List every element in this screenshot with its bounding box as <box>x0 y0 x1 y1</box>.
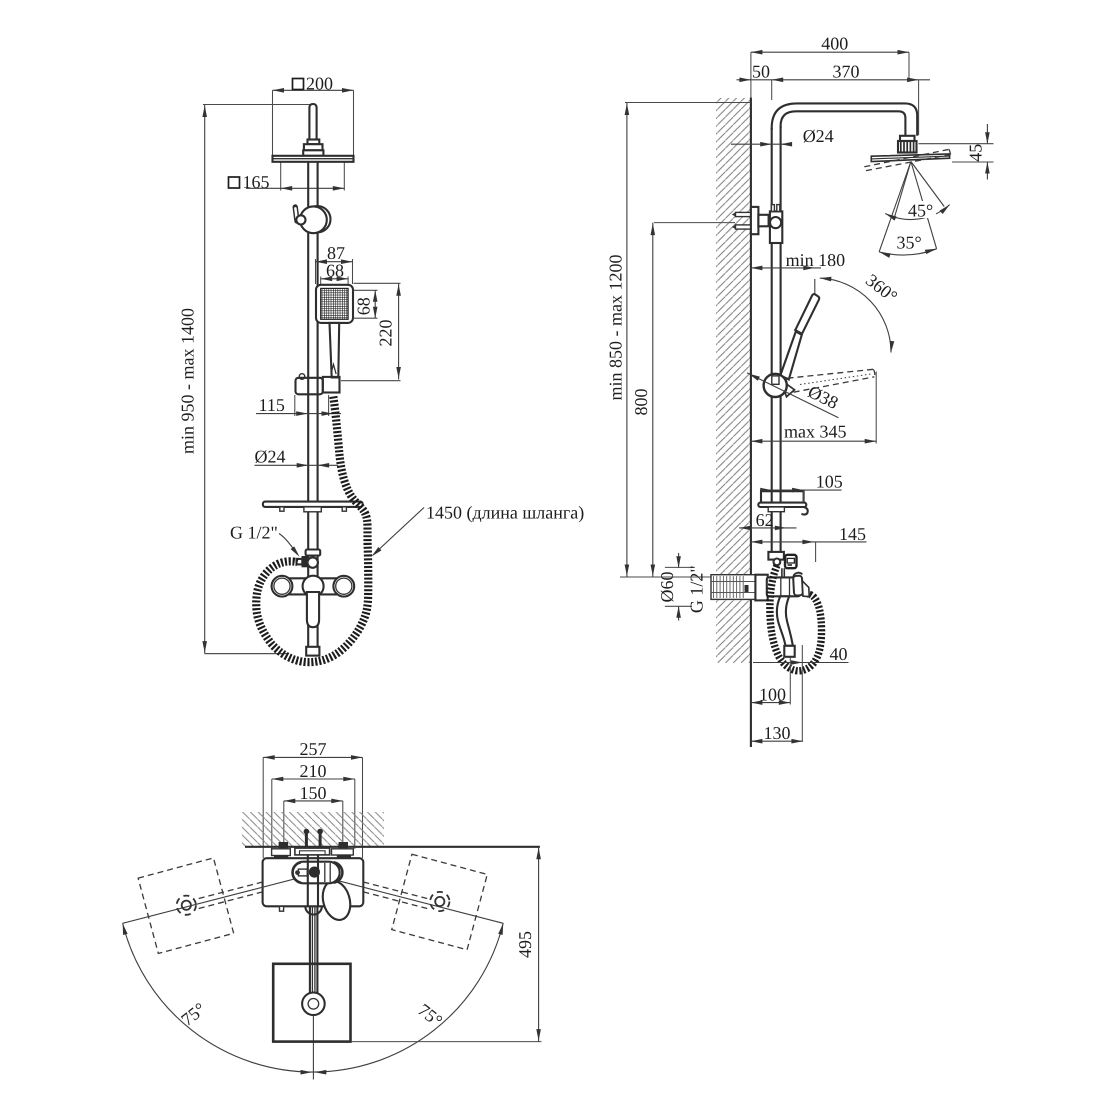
svg-text:min 950 - max 1400: min 950 - max 1400 <box>178 308 198 454</box>
svg-text:370: 370 <box>833 62 860 82</box>
svg-text:35°: 35° <box>897 233 922 253</box>
svg-text:Ø24: Ø24 <box>255 447 286 467</box>
svg-text:150: 150 <box>300 783 327 803</box>
svg-text:Ø24: Ø24 <box>803 126 834 146</box>
svg-text:68: 68 <box>354 297 374 315</box>
svg-text:495: 495 <box>515 931 535 958</box>
svg-text:G 1/2": G 1/2" <box>687 565 707 613</box>
svg-text:100: 100 <box>759 685 786 705</box>
svg-text:max 345: max 345 <box>784 422 847 442</box>
svg-text:68: 68 <box>326 261 344 281</box>
svg-text:145: 145 <box>839 524 866 544</box>
svg-text:400: 400 <box>821 34 848 54</box>
svg-text:40: 40 <box>830 644 848 664</box>
svg-text:50: 50 <box>752 62 770 82</box>
svg-text:G 1/2": G 1/2" <box>230 523 278 543</box>
svg-text:1450 (длина шланга): 1450 (длина шланга) <box>426 503 584 523</box>
svg-text:min 850 - max 1200: min 850 - max 1200 <box>606 255 626 401</box>
svg-text:800: 800 <box>631 389 651 416</box>
svg-text:165: 165 <box>243 172 270 192</box>
svg-text:200: 200 <box>306 74 333 94</box>
svg-text:45°: 45° <box>908 201 933 221</box>
svg-text:Ø60: Ø60 <box>657 572 677 603</box>
svg-text:115: 115 <box>259 395 285 415</box>
svg-text:45: 45 <box>966 144 986 162</box>
svg-text:105: 105 <box>816 472 843 492</box>
svg-text:220: 220 <box>376 320 396 347</box>
svg-text:62: 62 <box>756 510 774 530</box>
svg-text:257: 257 <box>300 739 327 759</box>
svg-text:210: 210 <box>300 761 327 781</box>
svg-text:min 180: min 180 <box>786 250 846 270</box>
svg-text:130: 130 <box>764 723 791 743</box>
